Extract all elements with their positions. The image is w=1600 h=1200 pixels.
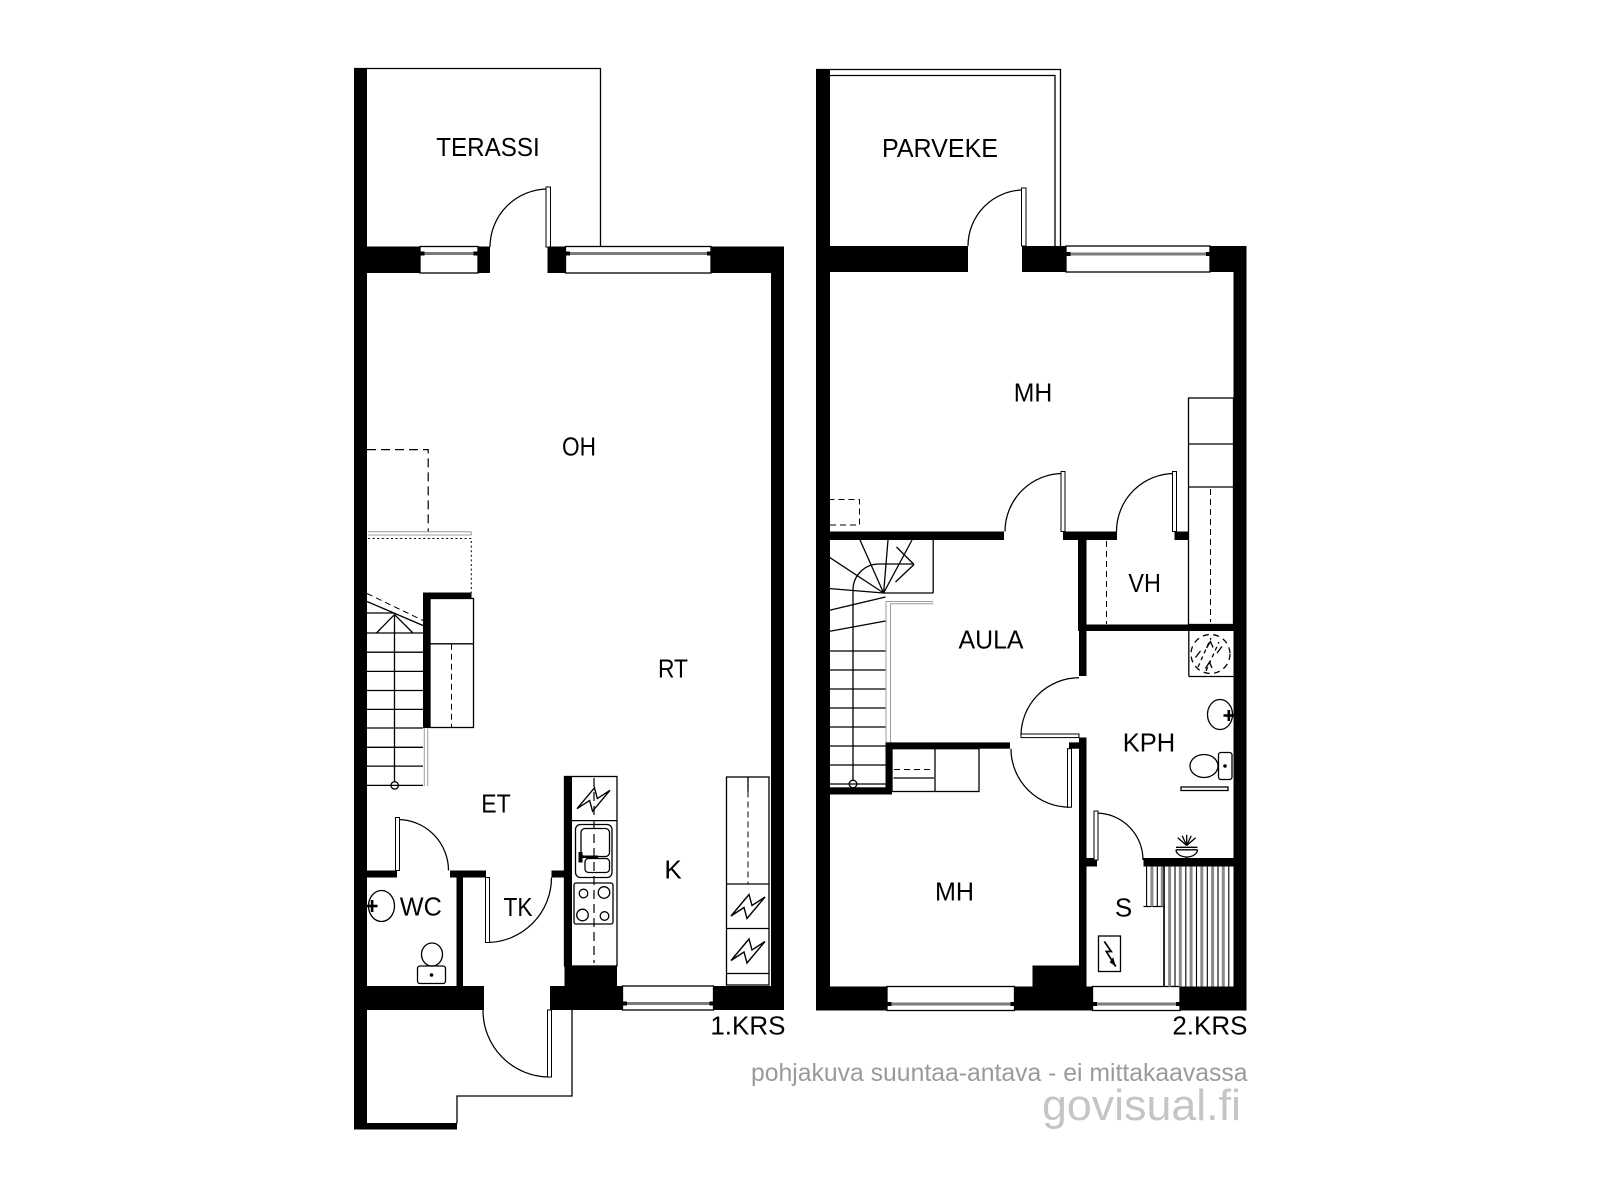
- svg-text:1.KRS: 1.KRS: [710, 1011, 785, 1041]
- svg-text:VH: VH: [1128, 568, 1161, 598]
- svg-text:WC: WC: [400, 892, 442, 922]
- svg-text:PARVEKE: PARVEKE: [882, 133, 998, 163]
- svg-text:TK: TK: [504, 892, 534, 922]
- svg-text:KPH: KPH: [1123, 728, 1176, 758]
- svg-text:RT: RT: [658, 654, 688, 684]
- svg-text:TERASSI: TERASSI: [436, 132, 540, 162]
- svg-text:MH: MH: [1014, 378, 1053, 408]
- svg-text:AULA: AULA: [959, 625, 1025, 655]
- svg-text:OH: OH: [562, 432, 596, 462]
- svg-text:S: S: [1115, 893, 1132, 923]
- svg-text:2.KRS: 2.KRS: [1172, 1011, 1247, 1041]
- svg-text:ET: ET: [481, 789, 511, 819]
- svg-text:MH: MH: [935, 877, 974, 907]
- svg-text:govisual.fi: govisual.fi: [1042, 1081, 1241, 1130]
- svg-text:K: K: [664, 855, 682, 885]
